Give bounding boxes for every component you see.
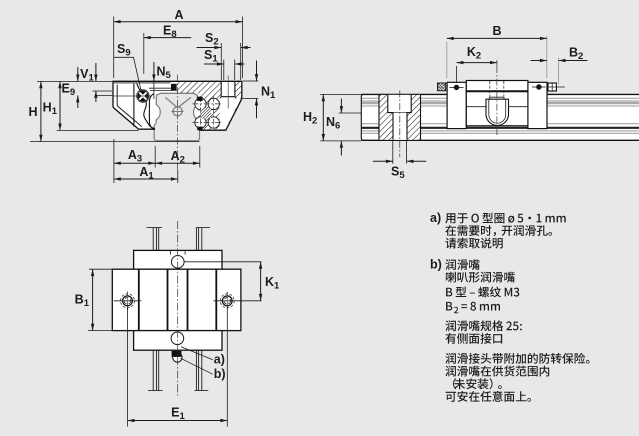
svg-text:B: B (492, 24, 501, 38)
svg-text:b): b) (214, 367, 226, 381)
svg-text:a): a) (430, 211, 441, 225)
svg-text:H: H (28, 105, 37, 119)
svg-text:a): a) (214, 352, 225, 366)
svg-text:A: A (174, 8, 183, 22)
svg-text:b): b) (430, 258, 442, 272)
